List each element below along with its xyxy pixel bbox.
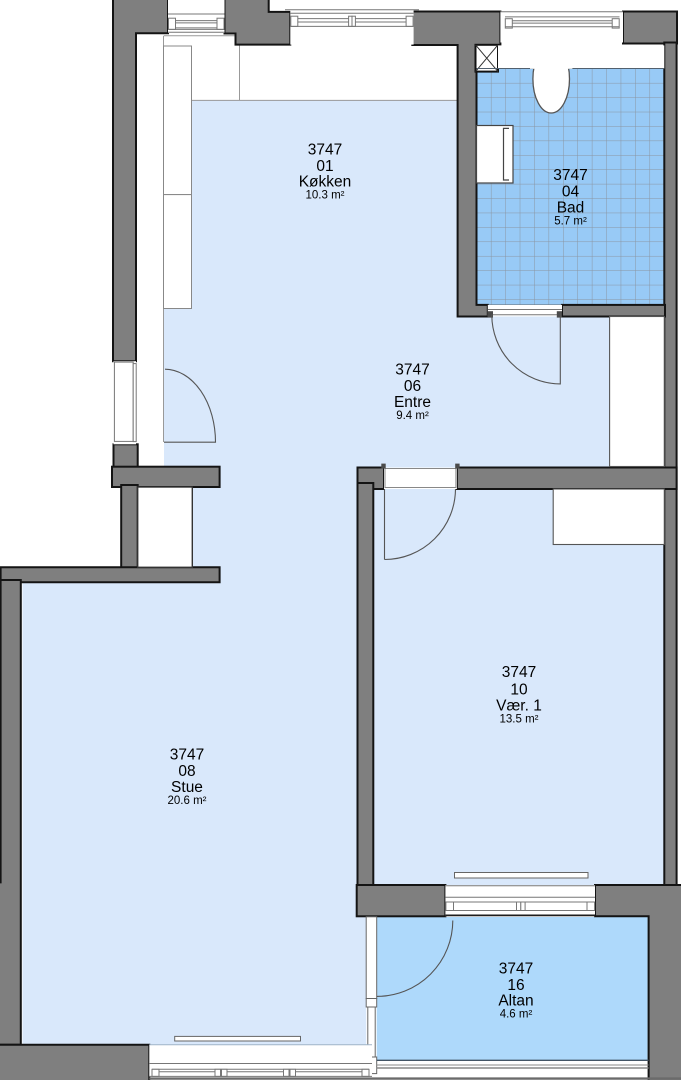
svg-text:Køkken: Køkken bbox=[299, 174, 352, 191]
svg-text:3747: 3747 bbox=[170, 747, 204, 764]
svg-text:Vær. 1: Vær. 1 bbox=[496, 698, 542, 715]
svg-text:Entre: Entre bbox=[394, 394, 431, 411]
svg-text:9.4 m²: 9.4 m² bbox=[396, 410, 429, 422]
svg-text:3747: 3747 bbox=[395, 362, 429, 379]
svg-text:Stue: Stue bbox=[171, 779, 203, 796]
svg-text:08: 08 bbox=[178, 763, 195, 780]
svg-text:10: 10 bbox=[510, 682, 528, 699]
svg-text:3747: 3747 bbox=[308, 142, 342, 159]
svg-text:06: 06 bbox=[404, 378, 421, 395]
svg-text:10.3 m²: 10.3 m² bbox=[306, 190, 345, 202]
svg-text:3747: 3747 bbox=[499, 961, 533, 978]
svg-text:3747: 3747 bbox=[502, 664, 536, 681]
svg-text:04: 04 bbox=[562, 184, 580, 201]
svg-text:01: 01 bbox=[316, 158, 333, 175]
svg-text:20.6 m²: 20.6 m² bbox=[168, 795, 207, 807]
svg-text:13.5 m²: 13.5 m² bbox=[500, 714, 539, 726]
svg-text:Bad: Bad bbox=[557, 200, 585, 217]
svg-text:Altan: Altan bbox=[498, 993, 533, 1010]
svg-text:3747: 3747 bbox=[553, 167, 587, 184]
svg-text:4.6 m²: 4.6 m² bbox=[500, 1009, 533, 1021]
svg-text:5.7 m²: 5.7 m² bbox=[554, 216, 587, 228]
svg-text:16: 16 bbox=[507, 977, 524, 994]
